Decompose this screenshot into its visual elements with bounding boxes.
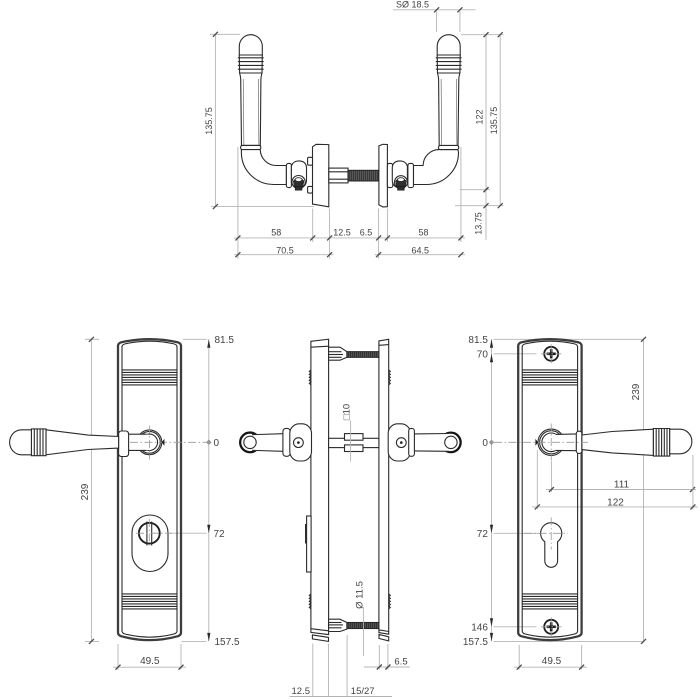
svg-text:111: 111 bbox=[614, 480, 630, 491]
svg-text:6.5: 6.5 bbox=[360, 228, 373, 238]
svg-text:49.5: 49.5 bbox=[140, 656, 160, 667]
svg-text:81.5: 81.5 bbox=[468, 335, 488, 346]
svg-text:SØ 18.5: SØ 18.5 bbox=[396, 0, 429, 10]
svg-text:72: 72 bbox=[477, 529, 489, 540]
svg-text:13.75: 13.75 bbox=[474, 212, 484, 235]
svg-text:15/27: 15/27 bbox=[351, 686, 375, 697]
svg-text:122: 122 bbox=[475, 109, 485, 124]
svg-text:64.5: 64.5 bbox=[412, 246, 430, 256]
svg-text:72: 72 bbox=[214, 529, 226, 540]
svg-text:6.5: 6.5 bbox=[394, 656, 407, 667]
svg-text:157.5: 157.5 bbox=[215, 637, 240, 648]
svg-text:Ø 11.5: Ø 11.5 bbox=[355, 581, 366, 609]
svg-text:12.5: 12.5 bbox=[292, 686, 311, 697]
svg-text:49.5: 49.5 bbox=[542, 656, 562, 667]
svg-text:135.75: 135.75 bbox=[489, 107, 499, 135]
svg-text:70.5: 70.5 bbox=[276, 246, 294, 256]
svg-text:58: 58 bbox=[271, 227, 281, 237]
svg-text:239: 239 bbox=[80, 483, 91, 500]
svg-text:12.5: 12.5 bbox=[333, 228, 351, 238]
svg-text:81.5: 81.5 bbox=[215, 335, 235, 346]
svg-text:239: 239 bbox=[631, 383, 642, 400]
svg-text:0: 0 bbox=[214, 438, 220, 449]
svg-text:□10: □10 bbox=[342, 404, 353, 420]
svg-text:70: 70 bbox=[477, 350, 489, 361]
svg-text:58: 58 bbox=[418, 227, 428, 237]
svg-text:157.5: 157.5 bbox=[463, 637, 488, 648]
svg-text:0: 0 bbox=[482, 438, 488, 449]
svg-text:146: 146 bbox=[471, 623, 488, 634]
svg-text:122: 122 bbox=[607, 498, 624, 509]
svg-text:135.75: 135.75 bbox=[204, 107, 214, 135]
